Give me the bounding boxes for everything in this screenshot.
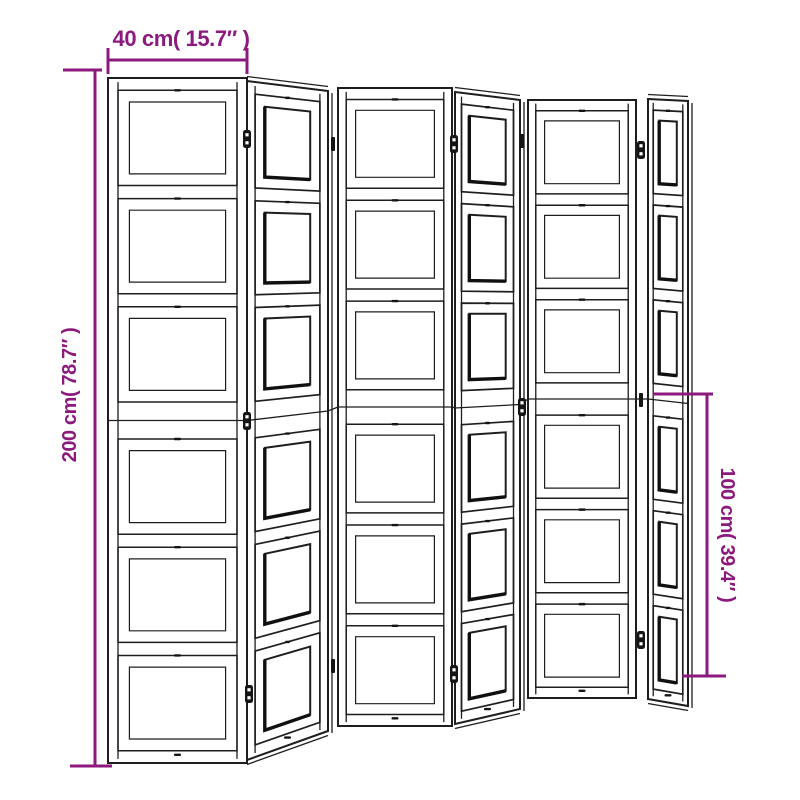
- total-height-dimension: 200 cm( 78.7″ ): [59, 70, 112, 766]
- hinge: [518, 398, 526, 416]
- hinge: [639, 393, 643, 407]
- hinge: [637, 631, 645, 649]
- hinge: [245, 685, 253, 703]
- hinge: [450, 135, 458, 153]
- panel-4: [455, 88, 524, 729]
- hinge: [520, 134, 524, 148]
- hinge: [243, 130, 251, 148]
- divider-drawing: [108, 77, 692, 765]
- panel-1: [108, 78, 247, 763]
- width-dimension: 40 cm( 15.7″ ): [108, 26, 250, 74]
- width-dimension-label: 40 cm( 15.7″ ): [112, 26, 249, 51]
- panel-5: [528, 100, 636, 698]
- room-divider-dimension-diagram: 40 cm( 15.7″ ) 200 cm( 78.7″ ) 100 cm( 3…: [0, 0, 800, 800]
- panel-6: [648, 95, 692, 711]
- hinge: [331, 659, 335, 673]
- panel-2: [247, 77, 332, 765]
- panel-3: [338, 88, 452, 726]
- hinge: [243, 412, 251, 430]
- total-height-dimension-label: 200 cm( 78.7″ ): [59, 328, 81, 463]
- product-diagram-page: 40 cm( 15.7″ ) 200 cm( 78.7″ ) 100 cm( 3…: [0, 0, 800, 800]
- half-height-dimension-label: 100 cm( 39.4″ ): [716, 468, 738, 603]
- hinge: [331, 137, 335, 151]
- hinge: [637, 141, 645, 159]
- hinge: [450, 665, 458, 683]
